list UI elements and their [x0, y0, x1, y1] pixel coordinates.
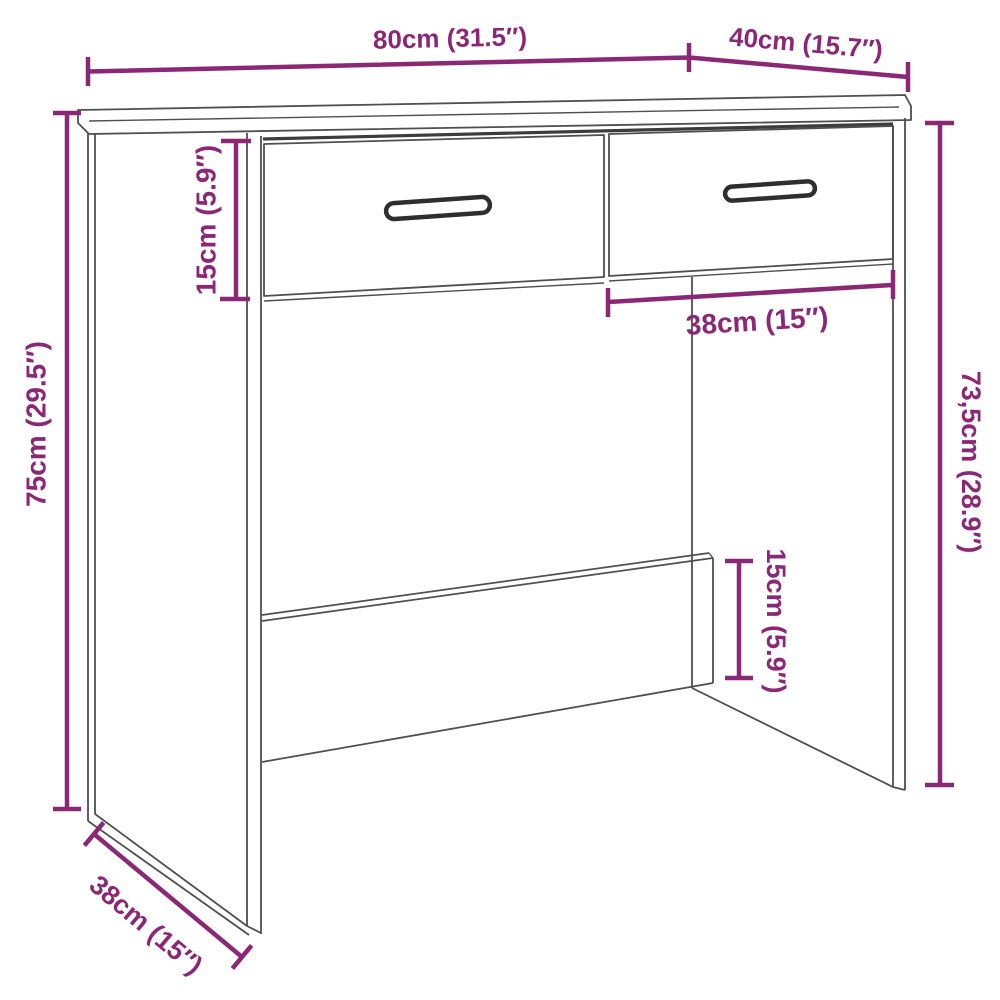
dim-top-width-label: 80cm (31.5″): [373, 21, 528, 54]
right-panel-foot-edge: [893, 787, 905, 790]
right-side-panel: [893, 118, 905, 790]
dim-panel-height-line: [725, 561, 753, 678]
dim-inner-width: 38cm (15″): [608, 270, 893, 341]
dim-inner-width-label: 38cm (15″): [685, 301, 829, 341]
dim-drawer-height: 15cm (5.9″): [191, 141, 252, 299]
back-panel: [262, 553, 713, 762]
dim-panel-height: 15cm (5.9″): [725, 548, 791, 693]
drawers: [264, 126, 893, 301]
dim-top-depth-label: 40cm (15.7″): [728, 21, 884, 64]
dimension-diagram: 80cm (31.5″) 40cm (15.7″) 15cm (5.9″) 75…: [0, 0, 1000, 1000]
dim-drawer-height-label: 15cm (5.9″): [191, 145, 222, 295]
dim-top-depth: 40cm (15.7″): [689, 21, 908, 92]
dim-inner-height-label: 73,5cm (28.9″): [956, 371, 986, 554]
left-panel-foot-edge: [247, 926, 261, 933]
right-panel-bottom-inner-edge: [692, 688, 893, 787]
back-panel-bottom-edge: [262, 683, 713, 762]
back-panel-top-front-edge: [262, 558, 713, 621]
back-panel-top-back-edge: [262, 553, 709, 615]
dim-top-width: 80cm (31.5″): [88, 21, 689, 86]
dim-inner-height-line: [925, 123, 954, 785]
dim-side-depth-label: 38cm (15″): [84, 869, 209, 980]
dim-side-depth: 38cm (15″): [84, 823, 252, 981]
dim-panel-height-label: 15cm (5.9″): [761, 548, 791, 693]
dim-total-height-line: [53, 113, 81, 809]
middle-leg: [692, 277, 893, 787]
dim-total-height: 75cm (29.5″): [21, 113, 82, 809]
dim-total-height-label: 75cm (29.5″): [21, 341, 52, 507]
dim-inner-height: 73,5cm (28.9″): [925, 123, 986, 785]
back-panel-top-end: [709, 553, 713, 558]
desk-diagram-svg: 80cm (31.5″) 40cm (15.7″) 15cm (5.9″) 75…: [0, 0, 1000, 1000]
